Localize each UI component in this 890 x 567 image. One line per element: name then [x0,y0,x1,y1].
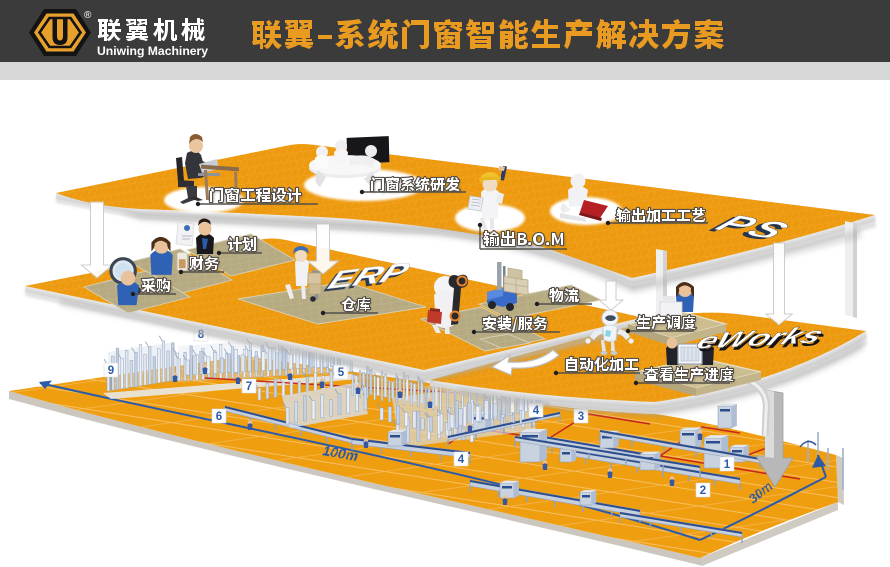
svg-text:6: 6 [216,411,222,423]
svg-text:®: ® [84,10,92,21]
svg-text:3: 3 [578,411,584,423]
svg-text:7: 7 [246,381,252,393]
svg-text:1: 1 [724,459,731,471]
svg-text:4: 4 [458,454,465,466]
svg-text:5: 5 [338,367,345,379]
svg-text:2: 2 [700,485,706,497]
svg-text:Uniwing Machinery: Uniwing Machinery [97,44,208,58]
svg-text:9: 9 [108,365,114,377]
